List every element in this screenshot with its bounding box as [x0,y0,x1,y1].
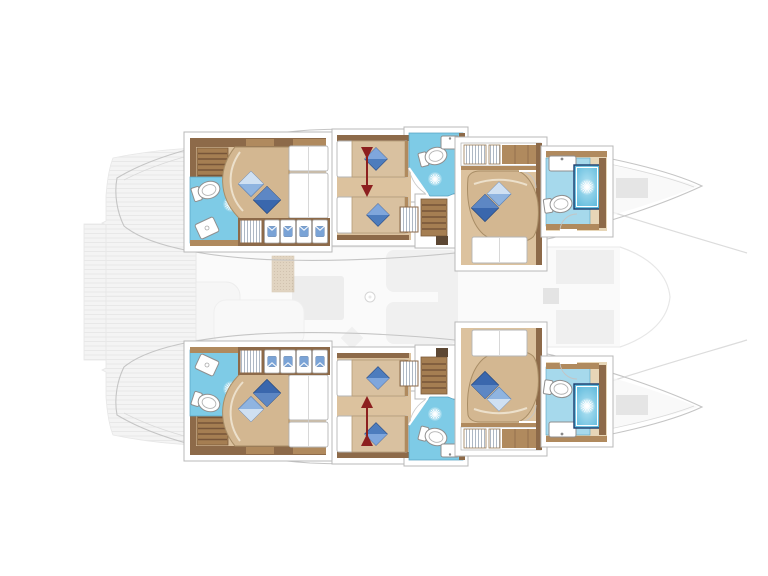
shirt-icon [268,226,277,236]
mast-base [365,292,375,302]
hanging-clothes-icon [240,220,262,243]
wardrobe [461,143,541,170]
shirt-icon [300,226,309,236]
single-bed [337,141,408,177]
single-bed [337,197,408,233]
bath-wall [599,158,606,228]
companionway-mat [272,256,294,292]
floor-plan-canvas [0,0,768,576]
forward-cabin [455,137,547,271]
aft-double-bed [223,146,328,229]
aft-cabin [184,132,332,252]
cabin-wall [337,135,409,141]
shower-drain-icon [428,172,442,186]
galley-counter-ghost [556,310,614,344]
galley-counter-ghost [556,250,614,284]
wardrobe [238,218,330,246]
cockpit-deck [102,148,196,297]
hanging-clothes-icon [400,207,418,232]
shelf [246,139,274,146]
hanging-clothes-icon [489,145,500,164]
trampoline-line [612,340,747,381]
cabin-wall [337,235,409,240]
shower-stall-icon [574,165,600,209]
nav-station-ghost [543,288,559,304]
hanging-clothes-icon [464,145,486,164]
trampoline-line [612,212,747,253]
shower-drain-icon [579,179,594,194]
mid-cabin [332,127,468,248]
forward-bathroom [541,146,613,237]
locker [502,145,540,164]
saloon-front-window [620,247,670,347]
shirt-icon [316,226,325,236]
deck-hatch-ghost [616,178,648,198]
stair-landing [436,236,448,245]
catamaran-floor-plan [0,0,768,576]
shirt-icon [284,226,293,236]
cockpit-bench-ghost [214,300,304,346]
swim-platform [84,224,106,360]
